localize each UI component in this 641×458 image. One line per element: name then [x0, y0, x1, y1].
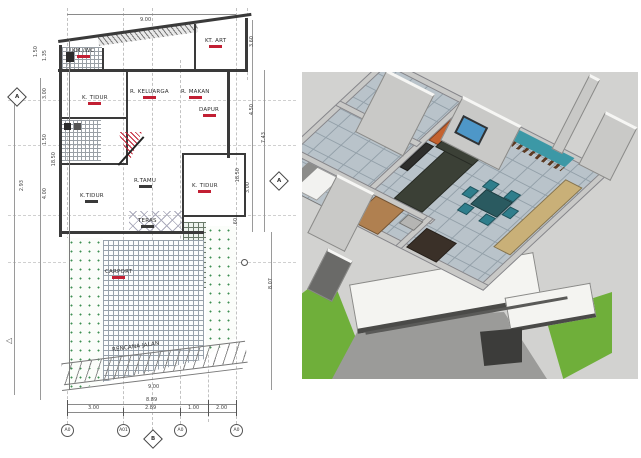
label-underline	[77, 55, 90, 58]
grid-bubble: A0	[230, 424, 243, 437]
window-glass	[454, 115, 488, 146]
label-underline	[85, 200, 98, 203]
grid-bubble: A0	[174, 424, 187, 437]
room-label-k-tidur-left: K.TIDUR	[80, 193, 104, 203]
dim-tick	[180, 408, 181, 416]
dim-top: 9.00	[140, 17, 151, 23]
dim-left-5: 2.93	[19, 180, 25, 191]
dim-tick	[208, 400, 209, 416]
label-underline	[88, 102, 101, 105]
room-label-carport: CARPORT	[105, 269, 132, 279]
section-marker-a-right: A	[269, 171, 289, 191]
label-underline	[141, 225, 154, 228]
dim-right-3: 18.50	[235, 168, 241, 182]
dimension-line	[271, 232, 272, 390]
dim-road-width: 9.00	[148, 384, 159, 390]
dimension-line	[40, 78, 41, 400]
render-3d-panel	[302, 72, 638, 379]
wall-segment	[58, 69, 248, 72]
section-marker-a-left: A	[7, 87, 27, 107]
dim-right-5: .60	[233, 218, 239, 226]
dim-left-4: 18.50	[51, 152, 57, 166]
wall-segment	[182, 153, 246, 155]
label-underline	[143, 96, 156, 99]
dim-left-2: 3.00	[42, 88, 48, 99]
wall-segment	[194, 24, 196, 71]
dim-left-6: 4.00	[42, 188, 48, 199]
dim-left-1: 1.35	[42, 50, 48, 61]
label-underline	[189, 96, 202, 99]
dim-left-3: 1.50	[42, 134, 48, 145]
dim-right-0: 3.60	[249, 36, 255, 47]
dimension-line	[67, 14, 236, 15]
dim-right-4: 3.00	[245, 182, 251, 193]
dim-right-1: 4.50	[249, 104, 255, 115]
grid-bubble: A0	[61, 424, 74, 437]
room-label-kt-art: KT. ART	[205, 38, 226, 48]
wall-segment	[102, 48, 104, 71]
dim-tick	[236, 400, 237, 416]
label-underline	[203, 114, 216, 117]
dim-right-6: 8.07	[268, 278, 274, 289]
entry-step	[480, 328, 522, 366]
dim-bottom-total: 8.89	[146, 397, 157, 403]
dim-bottom-seg-0: 3.00	[88, 405, 99, 411]
dimension-line	[67, 412, 236, 413]
room-label-r-tamu: R.TAMU	[134, 178, 156, 188]
kitchen-fixture	[64, 123, 71, 130]
dim-tick	[67, 400, 68, 416]
label-underline	[139, 185, 152, 188]
grid-bubble: A01	[117, 424, 130, 437]
dim-tick	[123, 408, 124, 416]
stair-symbol	[118, 132, 142, 160]
room-label-kmwc: KM./WC	[72, 48, 94, 58]
west-arrow-icon: ◁	[6, 336, 12, 345]
label-underline	[198, 190, 211, 193]
room-label-k-tidur-top: K. TIDUR	[82, 95, 108, 105]
section-marker-b-bottom: B	[143, 429, 163, 449]
label-underline	[112, 276, 125, 279]
wall-segment	[182, 153, 184, 233]
wall-segment	[59, 45, 62, 237]
room-label-r-keluarga: R. KELUARGA	[130, 89, 169, 99]
dimension-line	[264, 70, 265, 232]
survey-node	[241, 259, 248, 266]
dim-right-2: 7.43	[261, 132, 267, 143]
room-label-r-makan: R. MAKAN	[181, 89, 210, 99]
wall-segment	[182, 215, 246, 217]
room-label-teras: TERAS	[138, 218, 157, 228]
kitchen-fixture	[74, 123, 81, 130]
room-label-k-tidur-right: K. TIDUR	[192, 183, 218, 193]
screenshot-stage: KM./WC KT. ART K. TIDUR R. KELUARGA R. M…	[0, 0, 641, 458]
dimension-line	[252, 20, 253, 232]
dim-bottom-seg-2: 1.00	[188, 405, 199, 411]
property-line	[69, 40, 70, 390]
label-underline	[209, 45, 222, 48]
dim-bottom-seg-3: 2.00	[216, 405, 227, 411]
dimension-line	[14, 100, 15, 395]
wall-segment	[227, 70, 230, 158]
dim-left-0: 1.50	[33, 46, 39, 57]
floor-plan-panel: KM./WC KT. ART K. TIDUR R. KELUARGA R. M…	[0, 0, 302, 458]
dim-bottom-seg-1: 2.89	[145, 405, 156, 411]
wall-segment	[245, 18, 248, 72]
room-label-dapur: DAPUR	[199, 107, 219, 117]
garden-right	[206, 226, 236, 356]
